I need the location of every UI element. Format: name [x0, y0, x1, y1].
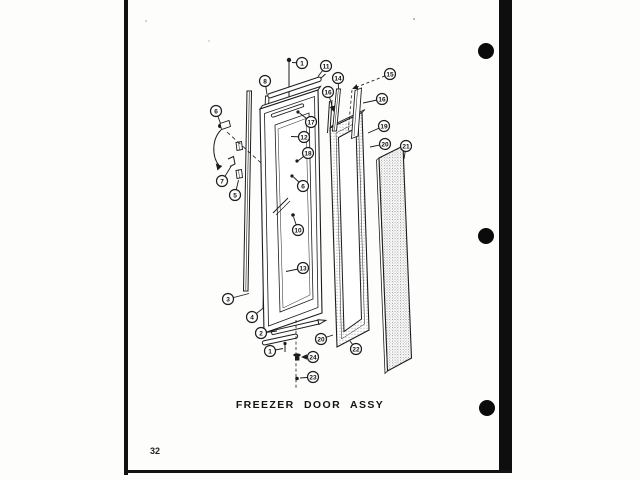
- callout-number-19: 19: [380, 123, 388, 130]
- punch-hole: [478, 43, 494, 59]
- callout-number-24: 24: [309, 354, 317, 361]
- callout-number-1: 1: [268, 348, 272, 355]
- door-screw-dot: [290, 174, 293, 177]
- door-screw-dot: [296, 110, 299, 113]
- callout-number-20: 20: [381, 141, 389, 148]
- callout-number-5: 5: [233, 192, 237, 199]
- callout-number-16: 16: [324, 89, 332, 96]
- page-number: 32: [150, 446, 160, 456]
- callout-number-13: 13: [299, 265, 307, 272]
- callout-number-4: 4: [250, 314, 254, 321]
- callout-number-14: 14: [334, 75, 342, 82]
- callout-number-15: 15: [386, 71, 394, 78]
- callout-number-7: 7: [220, 178, 224, 185]
- page-title: FREEZER DOOR ASSY: [219, 399, 401, 411]
- swing-arc-arrow: [216, 164, 223, 171]
- manual-page: 1118141516161712186675101334212022242319…: [0, 0, 640, 480]
- callout-number-23: 23: [309, 374, 317, 381]
- callout-number-16: 16: [378, 96, 386, 103]
- part-insulation-panel: [377, 146, 412, 374]
- callout-number-17: 17: [307, 119, 315, 126]
- callout-number-2: 2: [259, 330, 263, 337]
- callout-number-6: 6: [301, 183, 305, 190]
- callout-number-6: 6: [214, 108, 218, 115]
- callout-number-12: 12: [300, 134, 308, 141]
- callout-number-20: 20: [317, 336, 325, 343]
- door-screw-dot: [295, 159, 298, 162]
- callout-number-3: 3: [226, 296, 230, 303]
- callout-number-11: 11: [323, 63, 330, 70]
- callout-number-8: 8: [263, 78, 267, 85]
- callout-number-10: 10: [294, 227, 302, 234]
- part-side-trim-strip: [244, 91, 252, 291]
- punch-hole: [478, 228, 494, 244]
- callout-number-18: 18: [304, 150, 312, 157]
- punch-hole: [479, 400, 495, 416]
- punch-holes: [478, 43, 495, 416]
- callout-number-21: 21: [402, 143, 410, 150]
- callout-number-1: 1: [300, 60, 304, 67]
- callout-number-22: 22: [352, 346, 360, 353]
- part-inner-liner-frame: [330, 110, 369, 348]
- door-screw-dot: [291, 213, 295, 217]
- scan-specks: [145, 18, 415, 42]
